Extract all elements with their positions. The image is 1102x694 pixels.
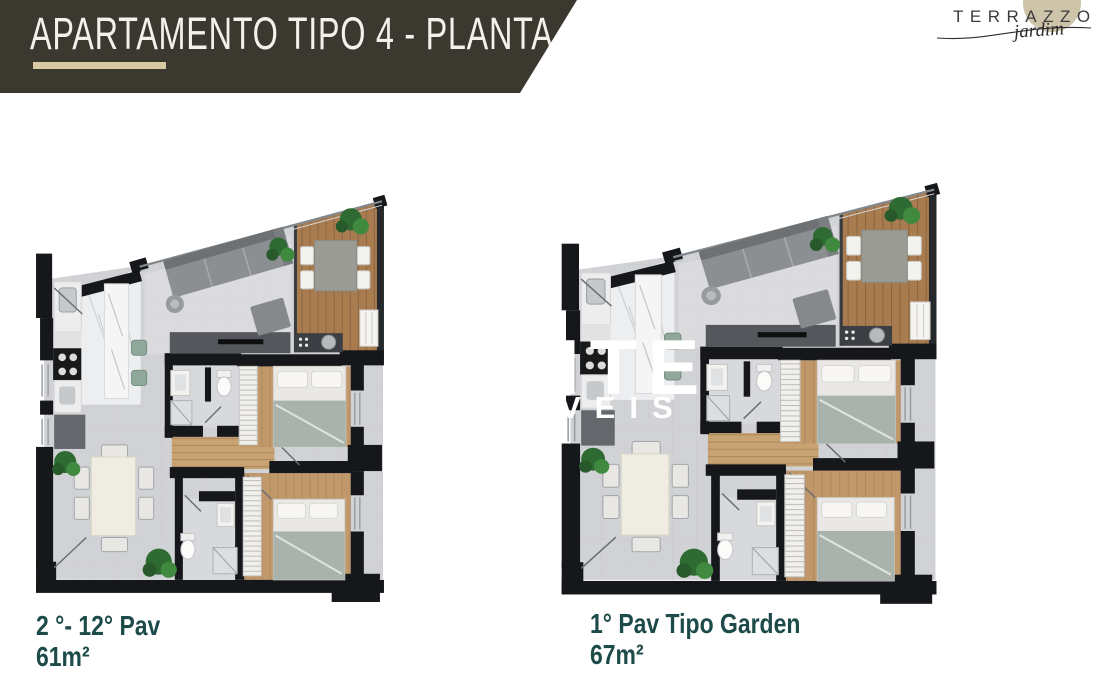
- plan-label-left: 2 °- 12° Pav 61m²: [36, 610, 160, 672]
- floorplan-left: [28, 163, 390, 606]
- header-banner: APARTAMENTO TIPO 4 - PLANTA: [0, 0, 600, 93]
- brand-logo: TERRAZZO jardim: [930, 0, 1102, 90]
- plan-left-area: 61m²: [36, 641, 160, 672]
- floorplan-left-drawing: [28, 163, 390, 606]
- plan-right-area: 67m²: [590, 639, 800, 670]
- title-underline: [33, 62, 166, 69]
- plan-label-right: 1° Pav Tipo Garden 67m²: [590, 608, 800, 670]
- watermark-line2: VEIS: [560, 390, 687, 426]
- logo-subtitle: jardim: [1013, 18, 1064, 43]
- page-title: APARTAMENTO TIPO 4 - PLANTA: [30, 8, 554, 60]
- plan-left-floors: 2 °- 12° Pav: [36, 610, 160, 641]
- slide-page: APARTAMENTO TIPO 4 - PLANTA TERRAZZO jar…: [0, 0, 1102, 694]
- plan-right-floors: 1° Pav Tipo Garden: [590, 608, 800, 639]
